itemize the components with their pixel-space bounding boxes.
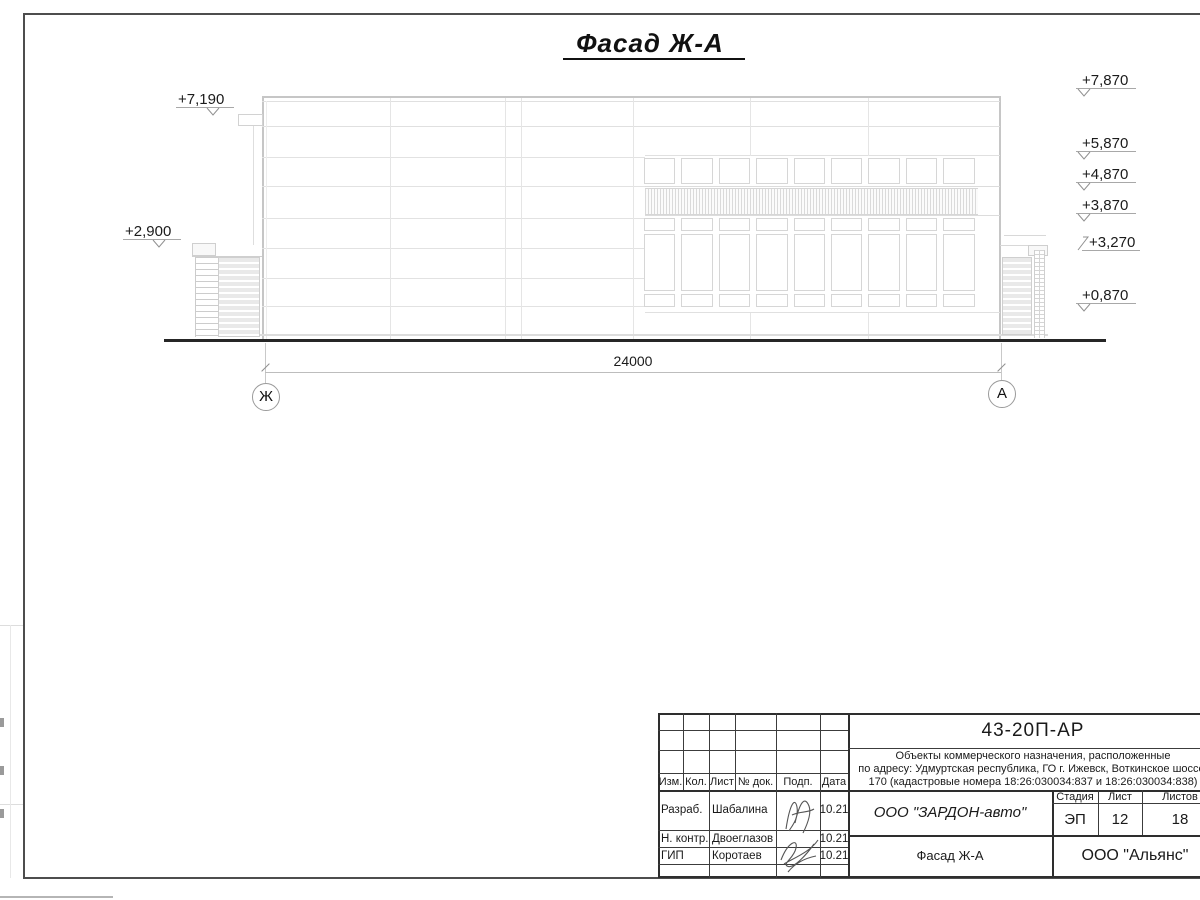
dimension-value: 24000 bbox=[593, 353, 673, 369]
sheet-header: Лист bbox=[1098, 790, 1142, 803]
elevation-mark-icon bbox=[206, 107, 220, 116]
window-pane bbox=[794, 158, 825, 184]
rev-header-kol: Кол. bbox=[683, 773, 709, 790]
facade-line bbox=[262, 248, 645, 249]
window-pane bbox=[906, 234, 937, 291]
window-pane bbox=[644, 294, 675, 307]
window-pane bbox=[719, 158, 750, 184]
window-pane bbox=[943, 158, 974, 184]
window-pane bbox=[681, 294, 712, 307]
elevation-mark-icon bbox=[1077, 213, 1091, 222]
elevation-mark-icon bbox=[1077, 182, 1091, 191]
row-date: 10.21 bbox=[820, 847, 848, 864]
row-name: Шабалина bbox=[709, 790, 779, 830]
elevation-label: +2,900 bbox=[125, 223, 171, 240]
window-pane bbox=[756, 158, 787, 184]
window-pane bbox=[794, 294, 825, 307]
project-description: Объекты коммерческого назначения, распол… bbox=[848, 748, 1200, 790]
row-role: Разраб. bbox=[658, 790, 712, 830]
dimension-line bbox=[265, 372, 1001, 373]
window-pane bbox=[794, 218, 825, 231]
canopy bbox=[238, 114, 263, 126]
elevation-mark-icon bbox=[152, 239, 166, 248]
louver-panel bbox=[218, 257, 260, 337]
axis-bubble-right: А bbox=[988, 380, 1016, 408]
facade-line bbox=[262, 218, 645, 219]
facade-line bbox=[750, 98, 751, 156]
row-name: Двоеглазов bbox=[709, 830, 779, 847]
stage-value: ЭП bbox=[1052, 803, 1098, 835]
window-pane bbox=[906, 158, 937, 184]
drawing-sheet: Фасад Ж-А +7,190 +2,900 +7,870 +5,870 +4… bbox=[0, 0, 1200, 900]
facade-line bbox=[262, 306, 645, 307]
dimension-extension-line bbox=[265, 343, 266, 383]
title-block-line bbox=[658, 876, 1200, 878]
facade-line bbox=[645, 312, 1000, 313]
window-pane bbox=[831, 234, 862, 291]
window-pane bbox=[644, 234, 675, 291]
window-pane bbox=[644, 218, 675, 231]
elevation-label: +7,190 bbox=[178, 91, 224, 108]
facade-line bbox=[390, 98, 391, 339]
window-pane bbox=[719, 234, 750, 291]
row-date: 10.21 bbox=[820, 830, 848, 847]
louver-cap bbox=[192, 243, 216, 256]
facade-line bbox=[262, 96, 1000, 98]
elevation-label: +4,870 bbox=[1082, 166, 1128, 183]
window-pane bbox=[756, 234, 787, 291]
sheets-total-value: 18 bbox=[1142, 803, 1200, 835]
facade-line bbox=[266, 101, 267, 339]
elevation-mark-icon bbox=[1077, 151, 1091, 160]
facade-line bbox=[262, 186, 645, 187]
facade-line bbox=[1039, 250, 1040, 338]
project-description-line1: Объекты коммерческого назначения, распол… bbox=[896, 750, 1171, 763]
sheet-number-value: 12 bbox=[1098, 803, 1142, 835]
stage-header: Стадия bbox=[1052, 790, 1098, 803]
window-pane bbox=[868, 234, 899, 291]
row-date: 10.21 bbox=[820, 790, 848, 830]
facade-line bbox=[240, 334, 1048, 336]
elevation-label: +5,870 bbox=[1082, 135, 1128, 152]
window-pane bbox=[719, 218, 750, 231]
window-pane bbox=[756, 218, 787, 231]
window-pane bbox=[831, 294, 862, 307]
window-pane bbox=[681, 158, 712, 184]
rev-header-podp: Подп. bbox=[776, 773, 820, 790]
elevation-mark-icon bbox=[1077, 88, 1091, 97]
window-pane bbox=[831, 158, 862, 184]
facade-line bbox=[1004, 235, 1046, 236]
window-pane bbox=[943, 218, 974, 231]
axis-bubble-left: Ж bbox=[252, 383, 280, 411]
row-name: Коротаев bbox=[709, 847, 779, 864]
project-description-line2: по адресу: Удмуртская республика, ГО г. … bbox=[858, 763, 1200, 776]
elevation-mark-icon bbox=[1077, 303, 1091, 312]
window-pane bbox=[681, 218, 712, 231]
window-pane bbox=[831, 218, 862, 231]
window-pane bbox=[756, 294, 787, 307]
window-pane bbox=[868, 158, 899, 184]
rev-header-data: Дата bbox=[820, 773, 848, 790]
signature-icon bbox=[776, 828, 822, 876]
facade-line bbox=[999, 96, 1001, 340]
dimension-extension-line bbox=[1001, 343, 1002, 380]
facade-line bbox=[262, 101, 1000, 102]
elevation-label: +3,870 bbox=[1082, 197, 1128, 214]
window-pane bbox=[906, 218, 937, 231]
customer-name: ООО "ЗАРДОН-авто" bbox=[848, 790, 1052, 835]
title-block: Изм. Кол. Лист № док. Подп. Дата 43-20П-… bbox=[658, 713, 1200, 878]
designer-name: ООО "Альянс" bbox=[1052, 835, 1200, 876]
facade-line bbox=[505, 98, 506, 339]
window-pane bbox=[794, 234, 825, 291]
facade-line bbox=[645, 215, 1000, 216]
window-pane bbox=[943, 294, 974, 307]
facade-line bbox=[645, 155, 1000, 156]
row-role: ГИП bbox=[658, 847, 712, 864]
facade-line bbox=[868, 98, 869, 156]
window-pane bbox=[868, 218, 899, 231]
facade-line bbox=[262, 278, 645, 279]
elevation-mark-icon bbox=[1076, 234, 1092, 251]
sheet-name: Фасад Ж-А bbox=[848, 835, 1052, 876]
elevation-label: +3,270 bbox=[1089, 234, 1135, 251]
facade-line bbox=[633, 98, 634, 339]
window-pane bbox=[644, 158, 675, 184]
louver-panel bbox=[195, 257, 219, 337]
facade-line bbox=[645, 186, 1000, 187]
rev-header-doc: № док. bbox=[735, 773, 776, 790]
rev-header-izm: Изм. bbox=[658, 773, 683, 790]
window-pane bbox=[681, 234, 712, 291]
window-pane bbox=[943, 234, 974, 291]
facade-line bbox=[262, 126, 1000, 127]
window-pane bbox=[719, 294, 750, 307]
facade-line bbox=[262, 157, 645, 158]
elevation-leader-line bbox=[176, 107, 234, 108]
document-number: 43-20П-АР bbox=[848, 713, 1200, 748]
facade-line bbox=[253, 126, 254, 245]
elevation-label: +0,870 bbox=[1082, 287, 1128, 304]
row-role: Н. контр. bbox=[658, 830, 712, 847]
facade-line bbox=[521, 98, 522, 339]
sheets-total-header: Листов bbox=[1142, 790, 1200, 803]
ground-line bbox=[164, 339, 1106, 342]
louver-panel bbox=[1002, 257, 1032, 335]
window-pane bbox=[906, 294, 937, 307]
rev-header-list: Лист bbox=[709, 773, 735, 790]
elevation-label: +7,870 bbox=[1082, 72, 1128, 89]
window-pane bbox=[868, 294, 899, 307]
corrugated-band bbox=[645, 188, 978, 215]
project-description-line3: 170 (кадастровые номера 18:26:030034:837… bbox=[869, 776, 1198, 789]
